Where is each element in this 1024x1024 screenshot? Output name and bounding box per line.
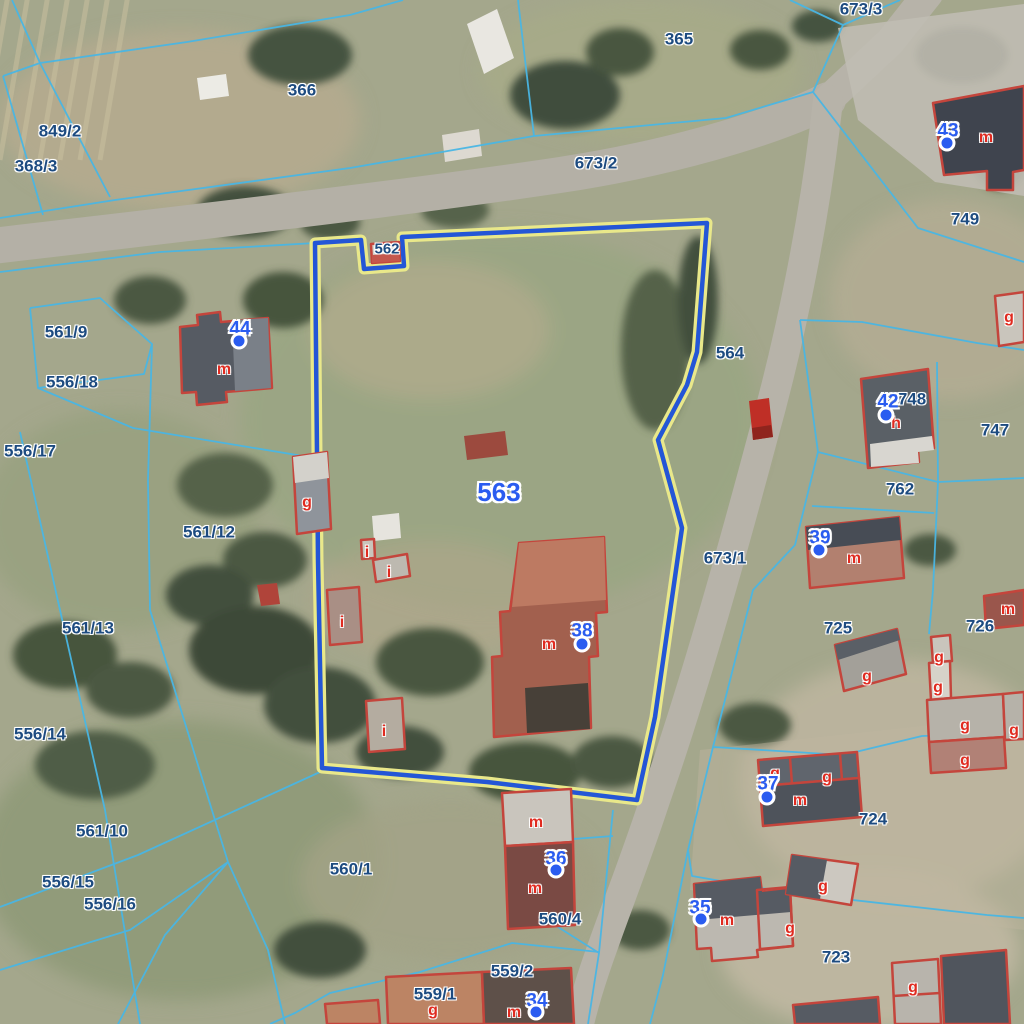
map-graphics [0, 0, 1024, 1024]
truck [749, 398, 773, 440]
map-canvas[interactable]: 366365673/3673/2849/2368/3749561/9556/18… [0, 0, 1024, 1024]
